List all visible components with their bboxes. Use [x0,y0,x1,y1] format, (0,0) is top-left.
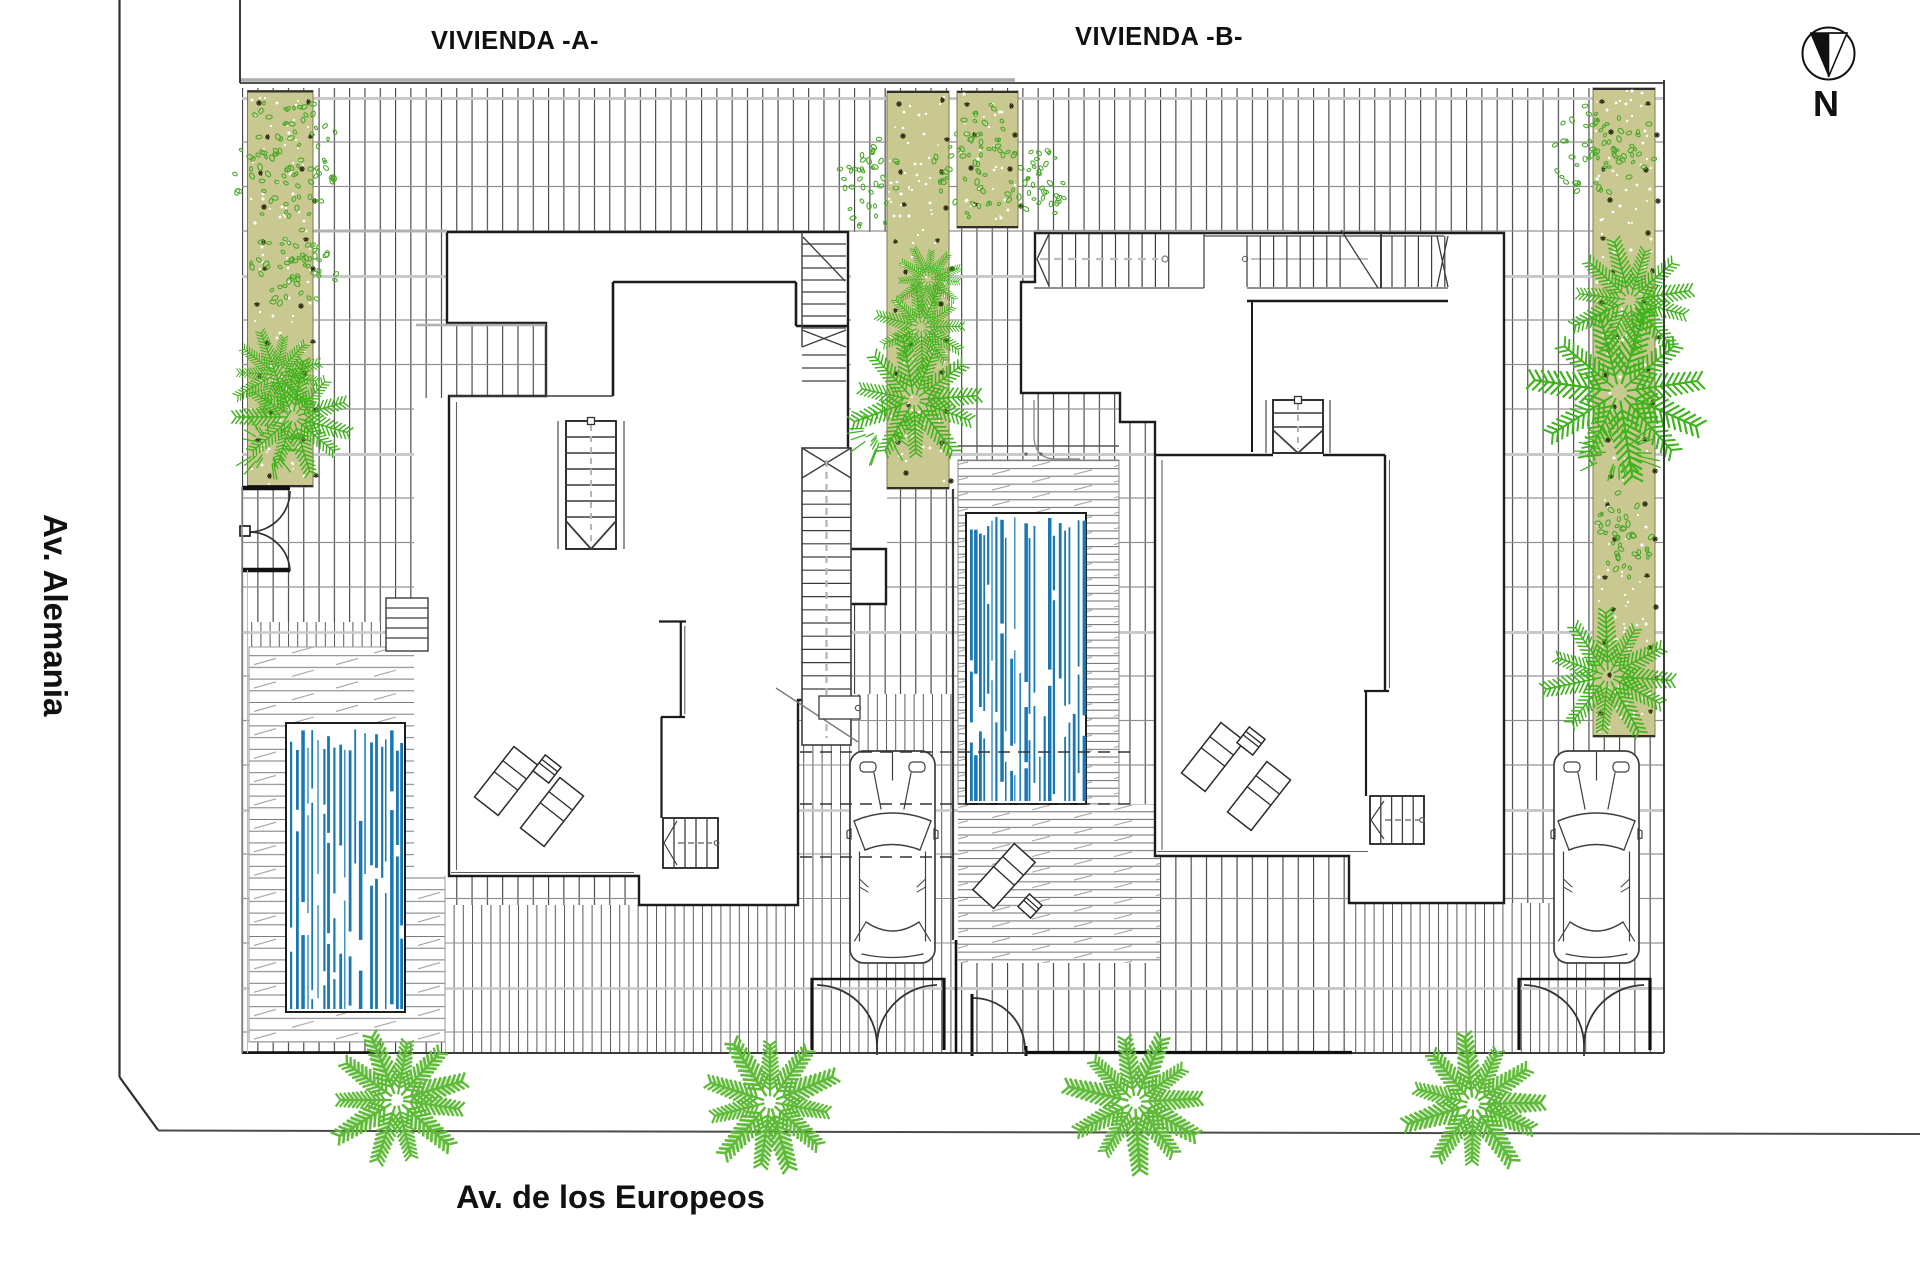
svg-text:N: N [1813,83,1839,124]
svg-text:Av. Alemania: Av. Alemania [37,514,74,717]
svg-text:Av. de los Europeos: Av. de los Europeos [456,1179,765,1215]
svg-text:VIVIENDA -B-: VIVIENDA -B- [1075,23,1243,51]
svg-text:VIVIENDA -A-: VIVIENDA -A- [431,27,599,55]
